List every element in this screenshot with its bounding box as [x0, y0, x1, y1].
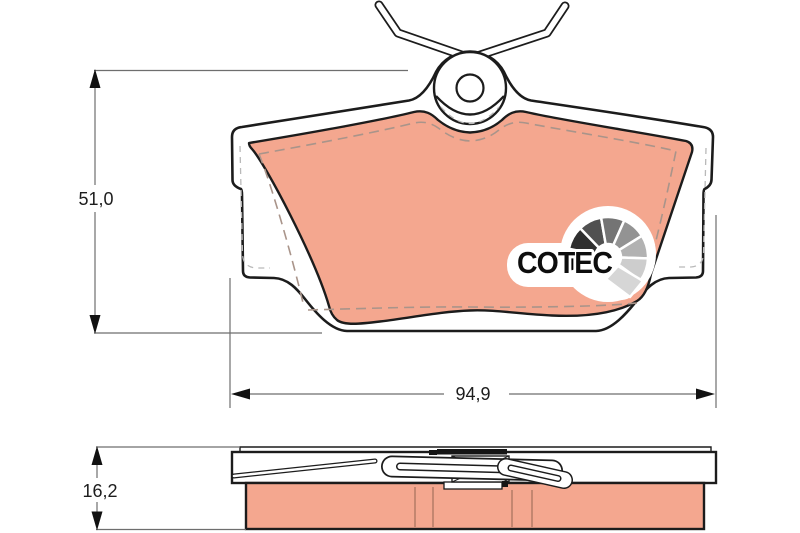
pad-material-side: [246, 483, 704, 529]
width-dimension-label: 94,9: [455, 384, 490, 404]
arrow-left-icon: [231, 389, 250, 400]
height-dimension-label: 51,0: [78, 189, 113, 209]
clip-flange: [444, 482, 502, 489]
arrow-up-icon: [90, 69, 101, 88]
cotec-logo-text: COTEC: [517, 245, 613, 280]
technical-drawing-svg: COTEC: [0, 0, 800, 533]
thickness-dimension-label: 16,2: [82, 481, 117, 501]
clip-nub-right: [502, 481, 508, 487]
arrow-down-icon: [90, 315, 101, 334]
dimension-thickness: 16,2: [82, 446, 246, 531]
front-view: COTEC: [232, 5, 713, 331]
arrow-right-icon: [696, 389, 715, 400]
clip-loop-right: [506, 467, 564, 480]
brake-pad-drawing: COTEC: [0, 0, 800, 533]
arrow-up-icon: [92, 446, 103, 465]
clip-top-bar: [437, 449, 507, 455]
clip-nub-left: [429, 450, 437, 455]
arrow-down-icon: [92, 512, 103, 531]
boss-hole: [457, 75, 484, 102]
side-view: [232, 447, 716, 529]
